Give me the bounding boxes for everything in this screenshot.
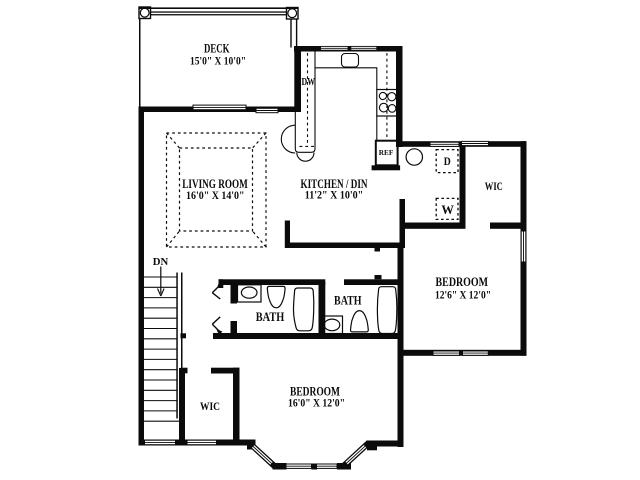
svg-text:REF: REF: [379, 148, 394, 157]
svg-text:DN: DN: [153, 257, 169, 268]
svg-text:15'0" X 10'0": 15'0" X 10'0": [190, 53, 246, 67]
svg-text:D: D: [444, 154, 451, 168]
svg-text:DW: DW: [302, 77, 316, 88]
svg-text:BATH: BATH: [256, 310, 285, 324]
svg-text:WIC: WIC: [200, 401, 220, 413]
svg-text:BATH: BATH: [334, 294, 362, 308]
svg-text:WIC: WIC: [485, 181, 503, 193]
svg-text:W: W: [441, 202, 454, 217]
svg-text:16'0" X 14'0": 16'0" X 14'0": [186, 188, 245, 202]
svg-text:16'0" X 12'0": 16'0" X 12'0": [288, 396, 345, 410]
svg-text:11'2" X 10'0": 11'2" X 10'0": [305, 187, 364, 201]
svg-text:12'6" X 12'0": 12'6" X 12'0": [435, 287, 491, 301]
